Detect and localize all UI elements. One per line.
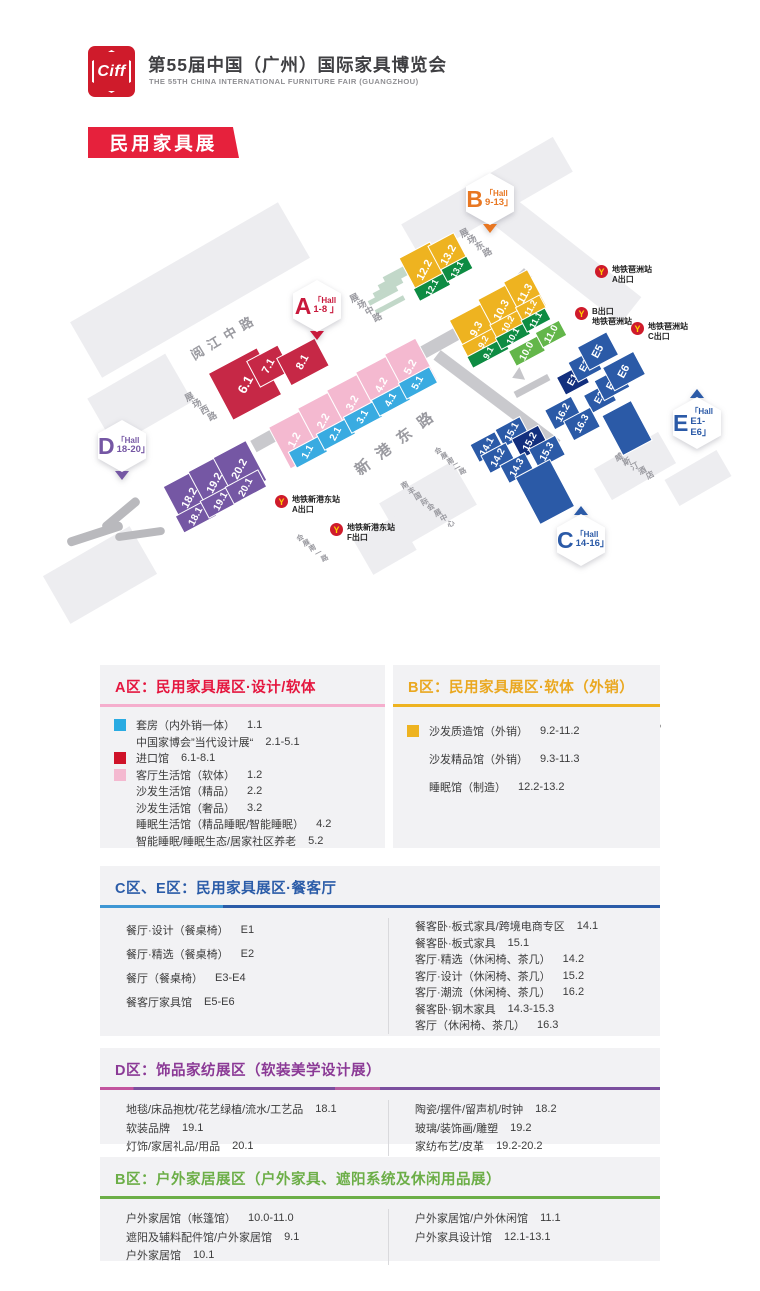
legend-item: 餐厅（餐桌椅）E3-E4 xyxy=(126,966,388,990)
legend-item: 餐客卧·钢木家具14.3-15.3 xyxy=(415,1001,660,1018)
badge-pointer-icon xyxy=(483,224,497,233)
legend-item: 户外家居馆（帐篷馆）10.0-11.0 xyxy=(126,1209,388,1228)
metro-label: 地铁琶洲站A出口 xyxy=(612,265,652,285)
legend-swatch-spacer xyxy=(114,835,126,847)
legend-item-label: 餐厅·设计（餐桌椅） xyxy=(126,922,229,938)
badge-hall-range: 14-16」 xyxy=(576,539,605,550)
legend-item-label: 餐客卧·板式家具 xyxy=(415,935,496,951)
badge-letter: B xyxy=(466,188,483,211)
badge-letter: D xyxy=(98,435,115,458)
legend-item-label: 客厅生活馆（软体） xyxy=(136,767,235,783)
legend-item-code: 11.1 xyxy=(540,1212,561,1224)
legend-item-label: 餐厅·精选（餐桌椅） xyxy=(126,946,229,962)
legend-panel-title: B区：户外家居展区（户外家具、遮阳系统及休闲用品展） xyxy=(100,1157,660,1189)
legend-item-code: 1.1 xyxy=(247,719,262,731)
hall-label: 2.1 xyxy=(328,425,344,442)
badge-letter: E xyxy=(673,412,688,435)
hall-label: 1.1 xyxy=(300,443,316,460)
venue-map: N 2025年3月18-21日 广州琶洲·广交会展馆 保利世贸博览馆 6.17.… xyxy=(0,128,760,656)
legend-item-code: 10.0-11.0 xyxy=(248,1212,294,1224)
legend-item: 沙发质造馆（外销）9.2-11.2 xyxy=(407,717,580,745)
legend-swatch xyxy=(114,719,126,731)
metro-icon: Y xyxy=(595,265,608,278)
legend-item-code: 1.2 xyxy=(247,769,262,781)
badge-pointer-icon xyxy=(690,389,704,398)
badge-letter: A xyxy=(295,295,312,318)
legend-item-label: 餐客厅家具馆 xyxy=(126,994,192,1010)
legend-item-label: 沙发生活馆（奢品） xyxy=(136,800,235,816)
badge-hall-text: 「Hall1-8 」 xyxy=(313,296,339,316)
hall-label: 20.1 xyxy=(237,476,256,498)
legend-item-code: E3-E4 xyxy=(215,972,246,984)
legend-item: 户外家具设计馆12.1-13.1 xyxy=(415,1228,660,1247)
legend-item-code: 19.2-20.2 xyxy=(496,1140,542,1152)
hall-label: 10.0 xyxy=(518,340,537,362)
hall-label: 19.1 xyxy=(212,490,231,512)
legend-swatch-spacer xyxy=(407,781,419,793)
legend-item-code: 15.2 xyxy=(563,970,584,982)
legend-swatch xyxy=(114,769,126,781)
legend-item: 软装品牌19.1 xyxy=(126,1119,388,1138)
legend-column: 户外家居馆（帐篷馆）10.0-11.0遮阳及辅料配件馆/户外家居馆9.1户外家居… xyxy=(100,1209,388,1265)
legend-swatch xyxy=(114,752,126,764)
hall-label: E5 xyxy=(590,342,607,360)
hall-label: E6 xyxy=(616,362,633,380)
metro-label: 地铁琶洲站C出口 xyxy=(648,322,688,342)
legend-item: 陶瓷/摆件/留声机/时钟18.2 xyxy=(415,1100,660,1119)
road-label: 会展南一路 xyxy=(294,531,331,564)
legend-item-label: 软装品牌 xyxy=(126,1120,170,1136)
metro-icon: Y xyxy=(575,307,588,320)
metro-icon: Y xyxy=(330,523,343,536)
hall-11.0: 11.0 xyxy=(536,321,566,347)
legend-item-code: 12.1-13.1 xyxy=(504,1231,550,1243)
hall-label: 9.1 xyxy=(481,345,496,361)
hall-label: 7.1 xyxy=(260,356,278,375)
hall-8.1: 8.1 xyxy=(277,339,328,385)
legend-item: 客厅·设计（休闲椅、茶几）15.2 xyxy=(415,968,660,985)
legend-item-code: 19.2 xyxy=(510,1122,531,1134)
legend-item: 玻璃/装饰画/雕塑19.2 xyxy=(415,1119,660,1138)
legend-item-label: 家纺布艺/皮革 xyxy=(415,1138,484,1154)
badge-hexagon: C「Hall14-16」 xyxy=(557,514,605,566)
legend-item-code: 6.1-8.1 xyxy=(181,752,215,764)
badge-hexagon: D「Hall18-20」 xyxy=(98,420,146,472)
legend-item-code: 18.2 xyxy=(535,1103,556,1115)
badge-hall-range: 9-13」 xyxy=(485,198,514,209)
legend-item-label: 沙发质造馆（外销） xyxy=(429,723,528,739)
ciff-logo-text: Ciff xyxy=(92,50,131,93)
legend-column: 地毯/床品抱枕/花艺绿植/流水/工艺品18.1软装品牌19.1灯饰/家居礼品/用… xyxy=(100,1100,388,1156)
hall-label: 6.1 xyxy=(234,373,256,396)
legend-item: 套房（内外销一体）1.1 xyxy=(114,717,331,734)
legend-column: 餐厅·设计（餐桌椅）E1餐厅·精选（餐桌椅）E2餐厅（餐桌椅）E3-E4餐客厅家… xyxy=(100,918,388,1034)
legend-item: 沙发生活馆（精品）2.2 xyxy=(114,783,331,800)
legend-item-code: 2.2 xyxy=(247,785,262,797)
badge-hall-text: 「Hall9-13」 xyxy=(485,189,514,209)
legend-item-label: 沙发生活馆（精品） xyxy=(136,783,235,799)
legend-panel-d: D区：饰品家纺展区（软装美学设计展）地毯/床品抱枕/花艺绿植/流水/工艺品18.… xyxy=(100,1048,660,1144)
metro-label: 地铁新港东站A出口 xyxy=(292,495,340,515)
hall-label: 4.1 xyxy=(383,391,399,408)
legend-column: 套房（内外销一体）1.1中国家博会”当代设计展“2.1-5.1进口馆6.1-8.… xyxy=(100,717,331,849)
badge-hall-text: 「HallE1-E6」 xyxy=(690,407,721,438)
badge-pointer-icon xyxy=(574,506,588,515)
badge-hexagon: B「Hall9-13」 xyxy=(466,173,514,225)
legend-item: 餐厅·设计（餐桌椅）E1 xyxy=(126,918,388,942)
legend-item: 智能睡眠/睡眠生态/居家社区养老5.2 xyxy=(114,833,331,850)
legend-item-label: 睡眠生活馆（精品睡眠/智能睡眠） xyxy=(136,816,304,832)
legend-item-code: 14.1 xyxy=(577,920,598,932)
legend-item: 客厅生活馆（软体）1.2 xyxy=(114,767,331,784)
legend-item: 中国家博会”当代设计展“2.1-5.1 xyxy=(114,734,331,751)
ciff-logo-icon: Ciff xyxy=(88,46,135,97)
metro-label: 地铁新港东站F出口 xyxy=(347,523,395,543)
legend-item-code: E2 xyxy=(241,948,254,960)
metro-station-pazhou-a: Y地铁琶洲站A出口 xyxy=(595,265,652,285)
fair-subtitle: THE 55TH CHINA INTERNATIONAL FURNITURE F… xyxy=(149,77,419,86)
legend-item-code: 10.1 xyxy=(193,1249,214,1261)
legend-item-label: 户外家居馆/户外休闲馆 xyxy=(415,1210,528,1226)
legend-item: 灯饰/家居礼品/用品20.1 xyxy=(126,1137,388,1156)
hall-badge-B: B「Hall9-13」 xyxy=(466,173,514,233)
legend-item-code: 15.1 xyxy=(508,937,529,949)
legend-item-code: 9.2-11.2 xyxy=(540,725,580,737)
legend-item-label: 遮阳及辅料配件馆/户外家居馆 xyxy=(126,1229,272,1245)
metro-icon: Y xyxy=(275,495,288,508)
hall-badge-A: A「Hall1-8 」 xyxy=(293,280,341,340)
legend-item-code: 20.1 xyxy=(232,1140,253,1152)
legend-item: 餐客卧·板式家具15.1 xyxy=(415,935,660,952)
legend-item: 沙发精品馆（外销）9.3-11.3 xyxy=(407,745,580,773)
legend-item: 地毯/床品抱枕/花艺绿植/流水/工艺品18.1 xyxy=(126,1100,388,1119)
legend-item-code: 4.2 xyxy=(316,818,331,830)
legend-item-label: 套房（内外销一体） xyxy=(136,717,235,733)
legend-item-label: 餐客卧·板式家具/跨境电商专区 xyxy=(415,918,565,934)
legend-item-code: 14.2 xyxy=(563,953,584,965)
legend-item-code: 2.1-5.1 xyxy=(265,736,299,748)
legend-swatch-spacer xyxy=(114,736,126,748)
hall-badge-D: D「Hall18-20」 xyxy=(98,420,146,480)
legend-item: 户外家居馆/户外休闲馆11.1 xyxy=(415,1209,660,1228)
legend-item: 餐厅·精选（餐桌椅）E2 xyxy=(126,942,388,966)
legend-item-label: 玻璃/装饰画/雕塑 xyxy=(415,1120,498,1136)
legend-column: 户外家居馆/户外休闲馆11.1户外家具设计馆12.1-13.1 xyxy=(388,1209,660,1265)
hall-label: 15.3 xyxy=(538,441,557,463)
hall-label: 11.0 xyxy=(542,323,561,345)
legend-item: 沙发生活馆（奢品）3.2 xyxy=(114,800,331,817)
legend-panel-title: A区：民用家具展区·设计/软体 xyxy=(100,665,385,697)
legend-item-label: 餐厅（餐桌椅） xyxy=(126,970,203,986)
legend-item: 遮阳及辅料配件馆/户外家居馆9.1 xyxy=(126,1228,388,1247)
legend-item-label: 地毯/床品抱枕/花艺绿植/流水/工艺品 xyxy=(126,1101,303,1117)
legend-item-code: 19.1 xyxy=(182,1122,203,1134)
legend-item-label: 户外家居馆 xyxy=(126,1247,181,1263)
hall-badge-C: C「Hall14-16」 xyxy=(557,506,605,566)
legend-item: 进口馆6.1-8.1 xyxy=(114,750,331,767)
legend-panel-a: A区：民用家具展区·设计/软体套房（内外销一体）1.1中国家博会”当代设计展“2… xyxy=(100,665,385,848)
city-block xyxy=(665,450,732,506)
legend-item: 睡眠馆（制造）12.2-13.2 xyxy=(407,773,580,801)
legend-swatch xyxy=(407,725,419,737)
hall-label: 3.1 xyxy=(355,408,371,425)
hall-label: 5.1 xyxy=(410,374,426,391)
legend-item-code: 5.2 xyxy=(308,835,323,847)
legend-item-label: 餐客卧·钢木家具 xyxy=(415,1001,496,1017)
badge-letter: C xyxy=(557,529,574,552)
legend-item-label: 中国家博会”当代设计展“ xyxy=(136,734,253,750)
metro-station-pazhou-c: Y地铁琶洲站C出口 xyxy=(631,322,688,342)
legend-item-label: 户外家具设计馆 xyxy=(415,1229,492,1245)
city-block xyxy=(43,526,157,624)
legend-item-label: 进口馆 xyxy=(136,750,169,766)
badge-hall-range: 1-8 」 xyxy=(313,305,339,316)
legend-item: 家纺布艺/皮革19.2-20.2 xyxy=(415,1137,660,1156)
entrance-arrow-head-icon xyxy=(503,367,525,387)
legend-item-code: 12.2-13.2 xyxy=(518,781,564,793)
legend-panel-b2: B区：户外家居展区（户外家具、遮阳系统及休闲用品展）户外家居馆（帐篷馆）10.0… xyxy=(100,1157,660,1261)
legend-swatch-spacer xyxy=(407,753,419,765)
legend-panel-title: B区：民用家具展区·软体（外销） xyxy=(393,665,660,697)
metro-station-xingangdong-f: Y地铁新港东站F出口 xyxy=(330,523,395,543)
badge-pointer-icon xyxy=(310,331,324,340)
legend-item-label: 客厅·设计（休闲椅、茶几） xyxy=(415,968,551,984)
legend-item-code: 9.3-11.3 xyxy=(540,753,580,765)
badge-hall-range: 18-20」 xyxy=(117,445,146,456)
badge-hall-text: 「Hall18-20」 xyxy=(117,436,146,456)
legend-item: 餐客卧·板式家具/跨境电商专区14.1 xyxy=(415,918,660,935)
legend-item-label: 客厅（休闲椅、茶几） xyxy=(415,1017,525,1033)
legend-item-code: 16.2 xyxy=(563,986,584,998)
legend-swatch-spacer xyxy=(114,802,126,814)
legend-item: 客厅·潮流（休闲椅、茶几）16.2 xyxy=(415,984,660,1001)
legend-item: 户外家居馆10.1 xyxy=(126,1246,388,1265)
legend-item-code: 18.1 xyxy=(315,1103,336,1115)
poster: Ciff 第55届中国（广州）国际家具博览会 THE 55TH CHINA IN… xyxy=(0,0,760,1291)
metro-station-xingangdong-a: Y地铁新港东站A出口 xyxy=(275,495,340,515)
legend-column: 陶瓷/摆件/留声机/时钟18.2玻璃/装饰画/雕塑19.2家纺布艺/皮革19.2… xyxy=(388,1100,660,1156)
legend-item-label: 客厅·潮流（休闲椅、茶几） xyxy=(415,984,551,1000)
hall-badge-E: E「HallE1-E6」 xyxy=(673,389,721,449)
legend-swatch-spacer xyxy=(114,785,126,797)
badge-hexagon: E「HallE1-E6」 xyxy=(673,397,721,449)
badge-hall-text: 「Hall14-16」 xyxy=(576,530,605,550)
legend-item: 客厅·精选（休闲椅、茶几）14.2 xyxy=(415,951,660,968)
badge-hexagon: A「Hall1-8 」 xyxy=(293,280,341,332)
legend-item-label: 智能睡眠/睡眠生态/居家社区养老 xyxy=(136,833,296,849)
badge-pointer-icon xyxy=(115,471,129,480)
legend-panel-ce: C区、E区：民用家具展区·餐客厅餐厅·设计（餐桌椅）E1餐厅·精选（餐桌椅）E2… xyxy=(100,866,660,1036)
legend-item-label: 户外家居馆（帐篷馆） xyxy=(126,1210,236,1226)
legend-panel-b: B区：民用家具展区·软体（外销）沙发质造馆（外销）9.2-11.2沙发精品馆（外… xyxy=(393,665,660,848)
legend-item: 客厅（休闲椅、茶几）16.3 xyxy=(415,1017,660,1034)
legend-item-label: 陶瓷/摆件/留声机/时钟 xyxy=(415,1101,523,1117)
metro-icon: Y xyxy=(631,322,644,335)
legend-item-code: 3.2 xyxy=(247,802,262,814)
hall-label: 8.1 xyxy=(294,352,312,371)
legend-panel-title: C区、E区：民用家具展区·餐客厅 xyxy=(100,866,660,898)
metro-label: B出口地铁琶洲站 xyxy=(592,307,632,327)
hall-label: 18.1 xyxy=(187,505,206,527)
hall-label: 16.3 xyxy=(573,413,592,435)
legend-column: 沙发质造馆（外销）9.2-11.2沙发精品馆（外销）9.3-11.3睡眠馆（制造… xyxy=(393,717,580,801)
legend-item-label: 睡眠馆（制造） xyxy=(429,779,506,795)
legend-item-label: 客厅·精选（休闲椅、茶几） xyxy=(415,951,551,967)
legend-item: 睡眠生活馆（精品睡眠/智能睡眠）4.2 xyxy=(114,816,331,833)
legend-panel-title: D区：饰品家纺展区（软装美学设计展） xyxy=(100,1048,660,1080)
legend-item-label: 灯饰/家居礼品/用品 xyxy=(126,1138,220,1154)
legend-item: 餐客厅家具馆E5-E6 xyxy=(126,990,388,1014)
legend-item-code: 9.1 xyxy=(284,1231,299,1243)
legend-item-label: 沙发精品馆（外销） xyxy=(429,751,528,767)
legend-item-code: E5-E6 xyxy=(204,996,235,1008)
badge-hall-range: E1-E6」 xyxy=(690,417,721,439)
legend-item-code: 14.3-15.3 xyxy=(508,1003,554,1015)
fair-title: 第55届中国（广州）国际家具博览会 xyxy=(148,52,447,77)
legend-item-code: 16.3 xyxy=(537,1019,558,1031)
metro-station-pazhou-b: YB出口地铁琶洲站 xyxy=(575,307,632,327)
legend-item-code: E1 xyxy=(241,924,254,936)
legend-swatch-spacer xyxy=(114,818,126,830)
legend-column: 餐客卧·板式家具/跨境电商专区14.1餐客卧·板式家具15.1客厅·精选（休闲椅… xyxy=(388,918,660,1034)
road-label: 展场西路 xyxy=(181,388,220,424)
